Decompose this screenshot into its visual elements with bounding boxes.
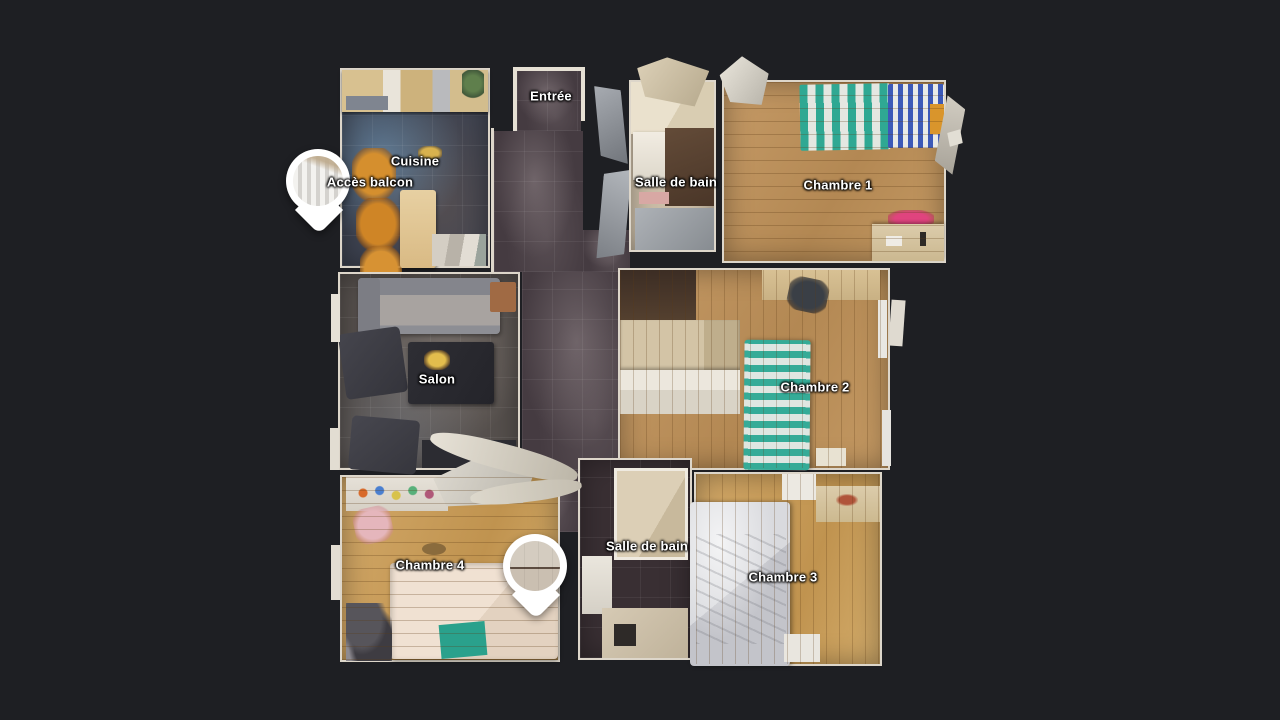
mesh-artifact [888,300,905,347]
side-table [490,282,516,312]
mesh-artifact [943,126,967,151]
blanket-pink [351,503,396,546]
room-salle-de-bain-bas[interactable] [578,458,692,660]
bed-chambre-2 [743,340,810,471]
room-label-salon[interactable]: Salon [419,372,455,387]
desk-items [886,236,902,246]
photo-marker-bathroom[interactable] [503,534,569,626]
hallway-floor[interactable] [494,131,583,272]
bathroom-wall [631,82,714,134]
decor-item [930,104,944,134]
armchair [338,326,409,400]
towel-teal [439,621,488,659]
radiator [878,300,887,358]
plant [462,70,484,100]
closet [620,320,740,370]
mesh-artifact [590,82,632,168]
room-label-acces-balcon[interactable]: Accès balcon [327,175,413,190]
desk-dark [620,270,696,320]
dining-chair [356,198,400,250]
bath-items [639,192,669,204]
room-label-salle-de-bain-bas[interactable]: Salle de bain [606,539,688,554]
room-salle-de-bain-haut[interactable] [629,80,716,252]
room-label-chambre-3[interactable]: Chambre 3 [749,570,818,585]
room-label-entree[interactable]: Entrée [530,89,572,104]
photo-marker-balcony[interactable] [286,149,352,241]
desk-items [920,232,926,246]
room-label-chambre-1[interactable]: Chambre 1 [804,178,873,193]
desk-items [836,494,858,506]
bed-chambre-1 [799,83,890,151]
sofa-armrest [358,278,380,334]
nightstand [784,634,820,662]
room-chambre-1[interactable] [722,80,946,263]
room-label-cuisine[interactable]: Cuisine [391,154,439,169]
closet-shelves [620,370,740,414]
room-label-chambre-2[interactable]: Chambre 2 [781,380,850,395]
wall [581,67,585,121]
room-label-chambre-4[interactable]: Chambre 4 [396,558,465,573]
bedside-items [816,448,846,466]
room-label-salle-de-bain-haut[interactable]: Salle de bain [635,175,717,190]
decor-item [424,350,450,370]
desk-chair [785,274,831,316]
hallway-floor[interactable] [583,230,630,272]
sink-cabinet [633,132,667,180]
sink [582,556,612,614]
marker-photo-thumbnail [510,541,560,591]
floor-smudge [422,543,446,555]
marker-ring [503,534,567,598]
bathroom-floor [665,128,714,206]
mesh-artifact [331,545,340,600]
radiator [882,410,891,466]
desk [872,224,944,261]
clothes-pile [346,603,392,661]
room-chambre-2[interactable] [618,268,890,470]
bed-folds [696,534,786,644]
shower-mat [614,624,636,646]
floorplan-viewer: Entrée Cuisine Accès balcon Salle de bai… [0,0,1280,720]
counter-clutter [432,234,486,266]
nightstand [782,474,816,500]
desk-clutter [352,481,444,505]
armchair [348,415,420,475]
shower [635,208,714,250]
kitchen-table [400,190,436,268]
kitchen-appliance [346,96,388,110]
